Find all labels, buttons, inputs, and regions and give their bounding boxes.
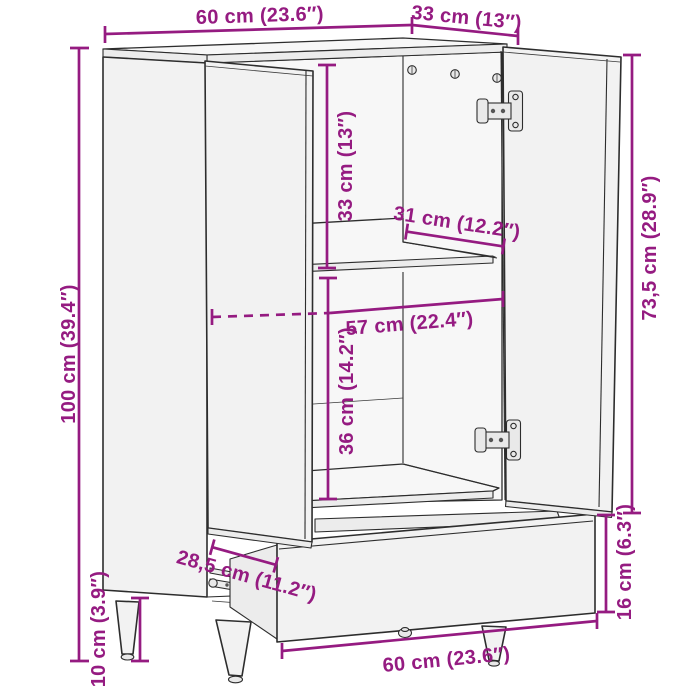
hinge-cup [477,99,488,123]
dim-top-width: 60 cm (23.6″) [105,3,412,43]
left-door [205,61,313,548]
leg-foot-cap [229,676,243,683]
slide-screw [225,583,228,586]
furniture-dimension-diagram: 60 cm (23.6″) 33 cm (13″) 100 cm (39.4″)… [0,0,700,700]
dim-label-overall-height: 100 cm (39.4″) [58,284,80,423]
cabinet-diagram-canvas: 60 cm (23.6″) 33 cm (13″) 100 cm (39.4″)… [0,0,700,700]
slide-roller [209,579,217,587]
hinge-bolt [499,438,503,442]
dim-label-lower-compartment: 36 cm (14.2″) [336,327,358,455]
hinge-bolt [491,109,495,113]
hinge-bolt [489,438,493,442]
dim-label-drawer-front-height: 16 cm (6.3″) [614,504,636,621]
dim-label-upper-compartment: 33 cm (13″) [335,111,357,222]
hinge-screw [511,423,516,428]
leg-foot-cap [121,654,134,660]
dim-label-top-width: 60 cm (23.6″) [195,3,324,29]
dim-door-height: 73,5 cm (28.9″) [623,55,661,513]
dim-drawer-front-height: 16 cm (6.3″) [597,504,636,621]
left-door-panel [205,61,313,542]
leg [216,620,251,676]
left-side-panel [103,57,207,597]
hinge-screw [513,94,518,99]
hinge-bolt [501,109,505,113]
dim-overall-height: 100 cm (39.4″) [58,48,89,661]
drawer-front [277,514,595,642]
dim-top-depth: 33 cm (13″) [410,2,522,45]
knob-top [401,628,408,632]
hinge-screw [511,451,516,456]
dim-label-bottom-width: 60 cm (23.6″) [382,643,512,677]
dim-label-leg-height: 10 cm (3.9″) [88,571,110,688]
leg [116,601,139,654]
hinge-screw [513,122,518,127]
hinge-cup [475,428,486,452]
leg-front-left [216,620,251,683]
cabinet-carcass [103,38,561,606]
dim-label-door-height: 73,5 cm (28.9″) [639,175,661,320]
leg-back-left [116,601,139,660]
